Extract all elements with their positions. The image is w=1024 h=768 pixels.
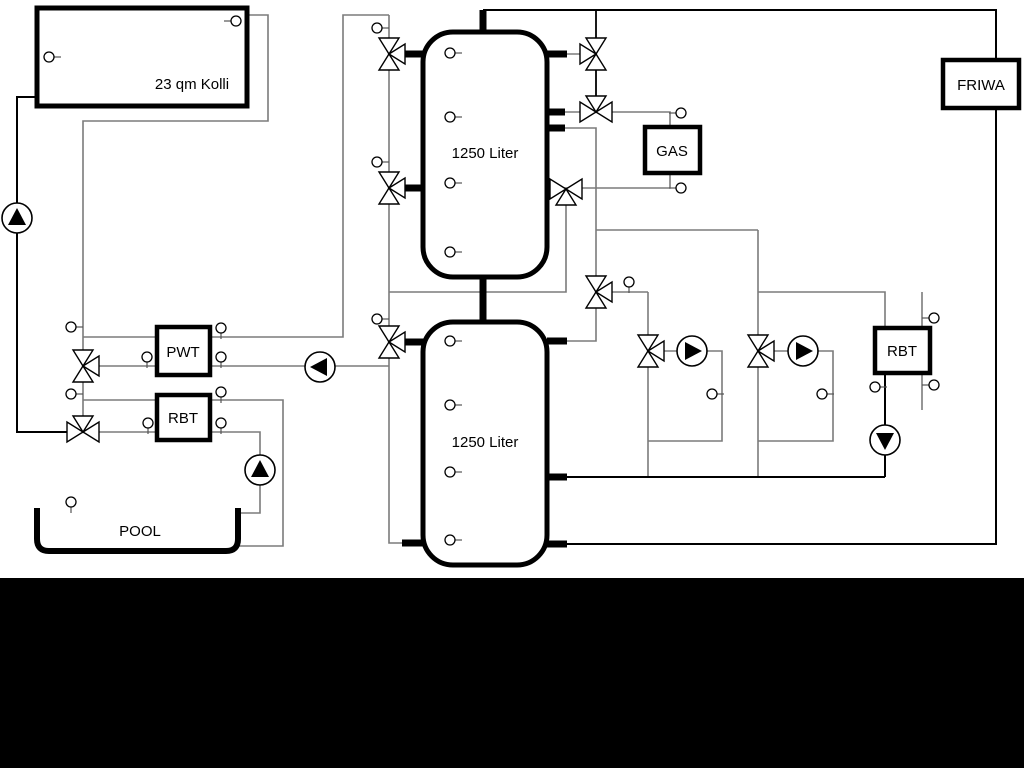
- three-way-valve-icon: [73, 350, 99, 382]
- three-way-valve-icon: [550, 179, 582, 205]
- buffer-charge-pump-icon: [305, 352, 335, 382]
- three-way-valve-icon: [638, 335, 664, 367]
- pipe-stratification-chain: [389, 15, 402, 543]
- temp-sensor-icon: [922, 313, 939, 323]
- heating-circuit-2-pump-icon: [788, 336, 818, 366]
- temp-sensor-icon: [66, 322, 83, 332]
- collector-pump-icon: [2, 203, 32, 233]
- temp-sensor-icon: [669, 183, 686, 193]
- pool-pump-icon: [245, 455, 275, 485]
- tank2-label: 1250 Liter: [452, 434, 519, 451]
- pwt-label: PWT: [166, 344, 199, 361]
- three-way-valve-icon: [67, 416, 99, 442]
- pool-label: POOL: [119, 523, 161, 540]
- three-way-valve-icon: [586, 276, 612, 308]
- friwa-label: FRIWA: [957, 77, 1005, 94]
- rbt-pool-label: RBT: [168, 410, 198, 427]
- temp-sensor-icon: [922, 380, 939, 390]
- three-way-valve-icon: [379, 326, 405, 358]
- temp-sensor-icon: [669, 108, 686, 118]
- temp-sensor-icon: [372, 23, 389, 33]
- three-way-valve-icon: [748, 335, 774, 367]
- tank1-label: 1250 Liter: [452, 145, 519, 162]
- temp-sensor-icon: [66, 497, 76, 513]
- three-way-valve-icon: [379, 172, 405, 204]
- pipe-rbt-heating-supply: [758, 292, 885, 328]
- hydraulic-schematic-svg: 23 qm Kolli 1250 Liter 1250 Liter PWT RB…: [0, 0, 1024, 768]
- temp-sensor-icon: [624, 277, 634, 293]
- rbt-heating-pump-icon: [870, 425, 900, 455]
- gas-label: GAS: [656, 143, 688, 160]
- three-way-valve-icon: [580, 96, 612, 122]
- three-way-valve-icon: [580, 38, 606, 70]
- pipe-header-friwa: [483, 10, 996, 544]
- collector-label: 23 qm Kolli: [155, 76, 229, 93]
- bottom-black-band: [0, 578, 1024, 768]
- three-way-valve-icon: [379, 38, 405, 70]
- temp-sensor-icon: [66, 389, 83, 399]
- temp-sensor-icon: [372, 157, 389, 167]
- schematic-page: 23 qm Kolli 1250 Liter 1250 Liter PWT RB…: [0, 0, 1024, 768]
- heating-circuit-1-pump-icon: [677, 336, 707, 366]
- pipe-port128-down: [565, 128, 596, 341]
- rbt-heating-label: RBT: [887, 343, 917, 360]
- temp-sensor-icon: [372, 314, 389, 324]
- temp-sensor-icon: [817, 389, 834, 399]
